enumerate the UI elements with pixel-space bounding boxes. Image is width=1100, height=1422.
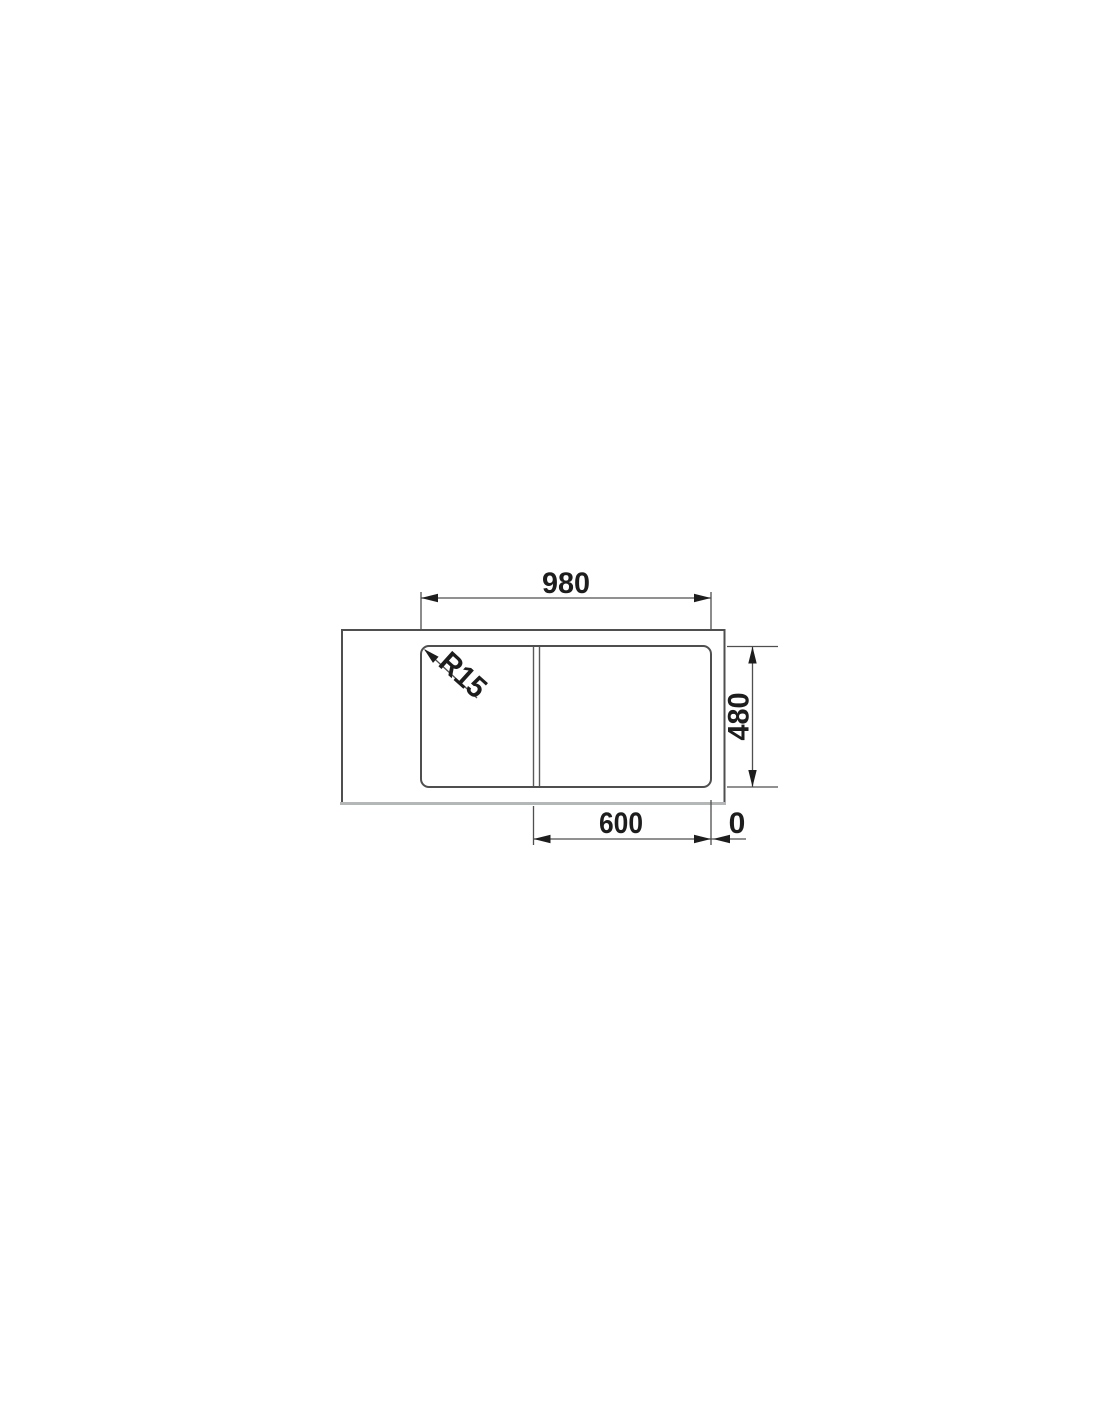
dimension-zero-offset: 0 [711,807,746,843]
arrowhead-up-icon [748,647,756,664]
arrowhead-left-icon [534,835,551,843]
dimension-value-offset: 0 [729,807,746,840]
arrowhead-right-icon [694,594,711,602]
sink-dimension-diagram: 980 480 600 0 [0,0,1100,1422]
dimension-top-width: 980 [421,567,711,629]
arrowhead-right-icon [694,835,711,843]
radius-callout: R15 [424,646,493,705]
dimension-value-bottom: 600 [599,807,643,840]
dimension-value-right: 480 [723,693,756,741]
arrowhead-down-icon [748,770,756,787]
dimension-value-top: 980 [542,567,590,600]
dimension-right-depth: 480 [723,646,779,787]
dimension-bottom-width: 600 [534,800,712,845]
drawing-page: 980 480 600 0 [0,0,1100,1422]
arrowhead-left-icon [713,835,730,843]
arrowhead-left-icon [421,594,438,602]
radius-value: R15 [432,646,493,705]
